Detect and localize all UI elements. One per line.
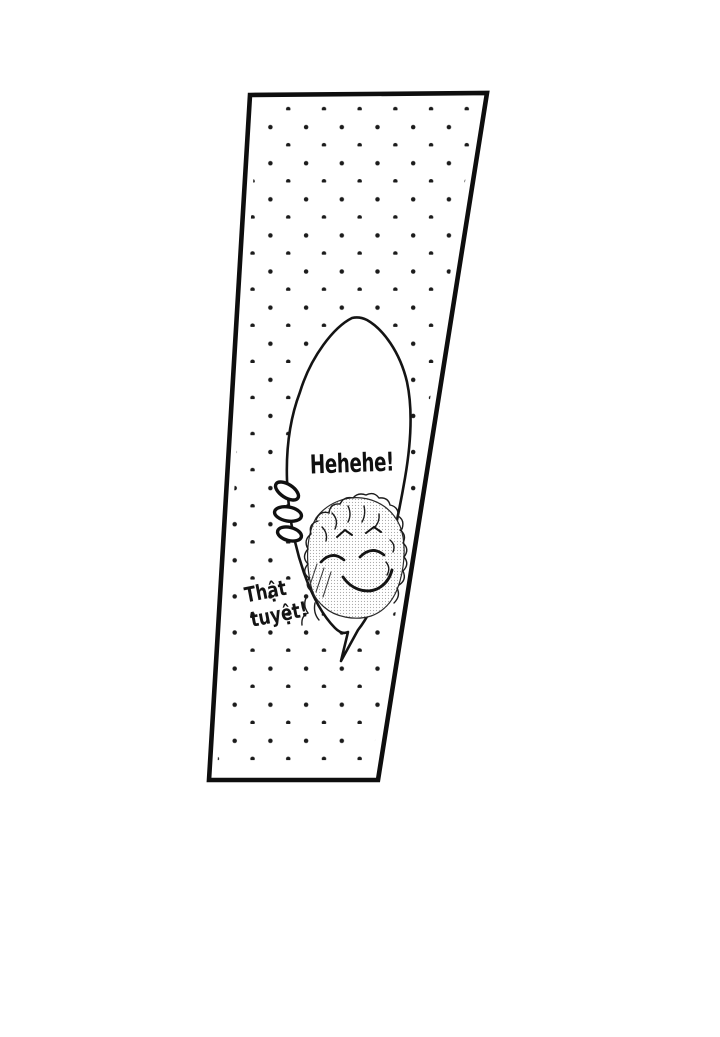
manga-panel-illustration: Hehehe! Thật tuyệt!	[0, 0, 720, 1037]
head-shape	[308, 498, 405, 619]
manga-page: Hehehe! Thật tuyệt!	[0, 0, 720, 1037]
bubble-laugh-text: Hehehe!	[310, 448, 395, 481]
